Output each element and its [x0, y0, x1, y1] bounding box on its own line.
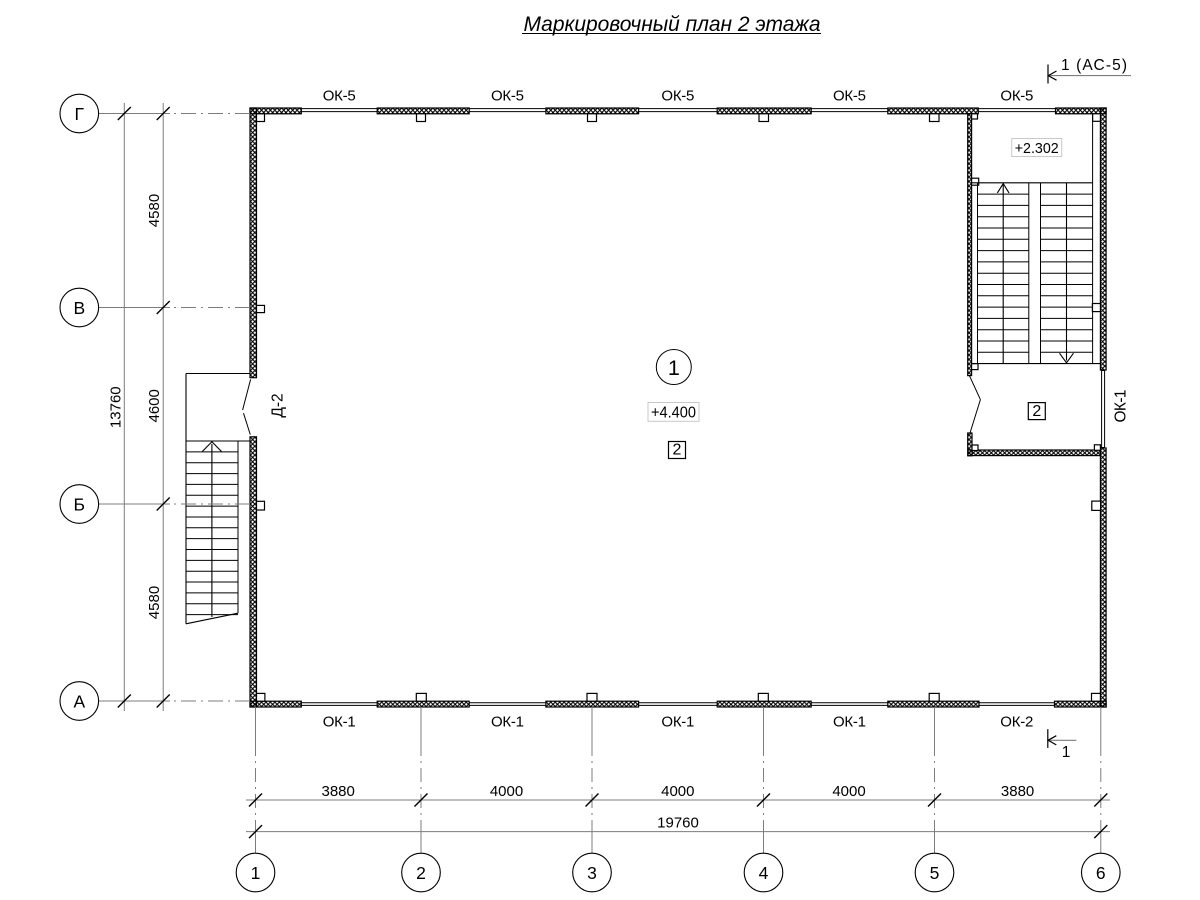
- svg-text:Г: Г: [75, 104, 85, 124]
- svg-text:19760: 19760: [657, 815, 699, 832]
- svg-text:ОК-1: ОК-1: [323, 714, 356, 731]
- svg-text:4: 4: [759, 863, 769, 883]
- svg-text:Д-2: Д-2: [270, 393, 287, 417]
- svg-text:1 (АС-5): 1 (АС-5): [1061, 57, 1127, 74]
- svg-text:Б: Б: [74, 494, 85, 514]
- svg-text:+4.400: +4.400: [651, 405, 696, 422]
- svg-text:ОК-5: ОК-5: [661, 88, 694, 105]
- svg-text:+2.302: +2.302: [1015, 140, 1059, 157]
- svg-text:1: 1: [251, 863, 261, 883]
- svg-text:2: 2: [1032, 403, 1041, 420]
- svg-text:В: В: [73, 298, 85, 318]
- svg-text:Маркировочный план 2 этажа: Маркировочный план 2 этажа: [524, 13, 821, 36]
- svg-text:4000: 4000: [832, 783, 865, 800]
- svg-text:3880: 3880: [322, 783, 355, 800]
- svg-text:ОК-1: ОК-1: [833, 714, 866, 731]
- svg-text:ОК-2: ОК-2: [1000, 714, 1033, 731]
- svg-text:ОК-5: ОК-5: [1000, 88, 1033, 105]
- svg-text:4580: 4580: [146, 194, 163, 227]
- svg-text:4600: 4600: [146, 389, 163, 422]
- svg-text:1: 1: [1062, 744, 1071, 761]
- svg-text:2: 2: [673, 442, 682, 459]
- svg-text:5: 5: [930, 863, 940, 883]
- svg-text:ОК-1: ОК-1: [1113, 390, 1130, 423]
- svg-text:ОК-1: ОК-1: [661, 714, 694, 731]
- svg-text:ОК-5: ОК-5: [491, 88, 524, 105]
- svg-text:ОК-5: ОК-5: [833, 88, 866, 105]
- svg-text:4580: 4580: [146, 586, 163, 619]
- svg-text:3880: 3880: [1001, 783, 1034, 800]
- svg-text:ОК-5: ОК-5: [323, 88, 356, 105]
- svg-text:2: 2: [416, 863, 426, 883]
- svg-text:3: 3: [587, 863, 597, 883]
- svg-text:4000: 4000: [661, 783, 694, 800]
- svg-text:4000: 4000: [490, 783, 523, 800]
- svg-text:6: 6: [1096, 863, 1106, 883]
- svg-text:1: 1: [668, 356, 680, 380]
- svg-text:А: А: [73, 691, 85, 711]
- svg-text:13760: 13760: [107, 386, 124, 428]
- svg-text:ОК-1: ОК-1: [491, 714, 524, 731]
